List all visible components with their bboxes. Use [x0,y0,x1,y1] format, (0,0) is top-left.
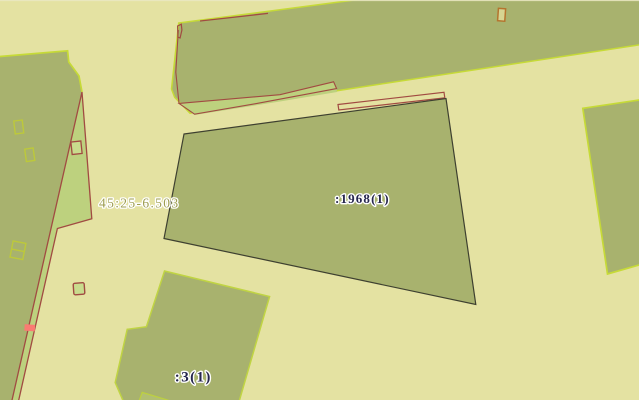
svg-text::1968(1): :1968(1) [335,191,390,206]
svg-text::3(1): :3(1) [175,369,212,385]
svg-text:45:25-6.503: 45:25-6.503 [99,196,179,211]
